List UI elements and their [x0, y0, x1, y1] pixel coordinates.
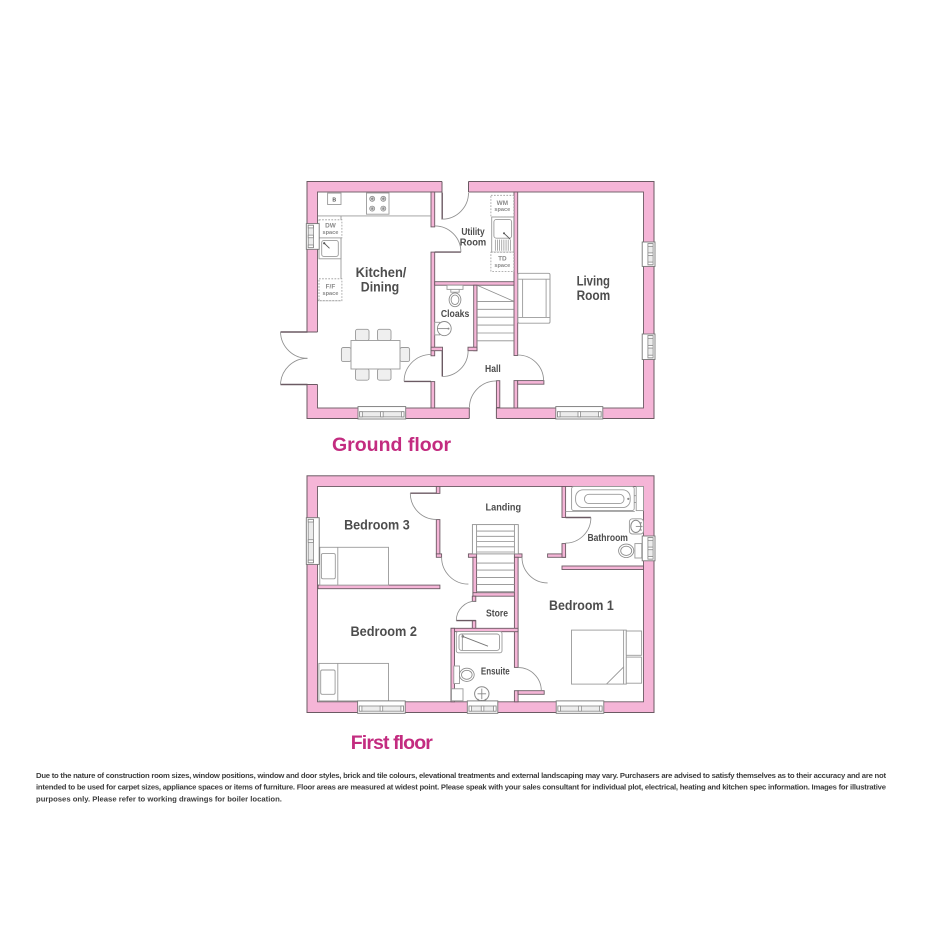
- svg-text:space: space: [323, 291, 339, 297]
- svg-text:B: B: [332, 197, 336, 203]
- svg-text:Bedroom 1: Bedroom 1: [549, 598, 614, 613]
- svg-text:space: space: [323, 230, 339, 236]
- svg-text:First floor: First floor: [351, 732, 433, 754]
- svg-text:Living: Living: [577, 273, 610, 288]
- svg-text:TD: TD: [498, 256, 507, 263]
- svg-text:Landing: Landing: [486, 503, 522, 514]
- svg-text:DW: DW: [325, 223, 337, 230]
- svg-text:Bathroom: Bathroom: [587, 533, 628, 544]
- svg-text:Cloaks: Cloaks: [441, 309, 470, 320]
- svg-text:Ground floor: Ground floor: [332, 434, 452, 456]
- svg-text:space: space: [494, 263, 510, 269]
- svg-text:Ensuite: Ensuite: [481, 667, 510, 678]
- svg-text:WM: WM: [497, 200, 508, 207]
- svg-text:Bedroom 2: Bedroom 2: [350, 624, 417, 639]
- svg-text:Bedroom 3: Bedroom 3: [344, 517, 410, 532]
- svg-text:intended to be used for carpet: intended to be used for carpet sizes, ap…: [36, 783, 887, 792]
- svg-text:Due to the nature of construct: Due to the nature of construction room s…: [36, 771, 886, 780]
- svg-text:Room: Room: [577, 288, 611, 303]
- svg-text:F/F: F/F: [326, 284, 336, 291]
- svg-text:Dining: Dining: [361, 280, 399, 295]
- svg-text:space: space: [494, 207, 510, 213]
- svg-text:Room: Room: [460, 237, 487, 248]
- svg-text:Store: Store: [486, 608, 508, 619]
- svg-text:Utility: Utility: [461, 227, 485, 238]
- svg-text:purposes only. Please refer to: purposes only. Please refer to working d…: [36, 794, 282, 803]
- svg-text:Kitchen/: Kitchen/: [356, 265, 407, 280]
- svg-text:Hall: Hall: [485, 364, 501, 375]
